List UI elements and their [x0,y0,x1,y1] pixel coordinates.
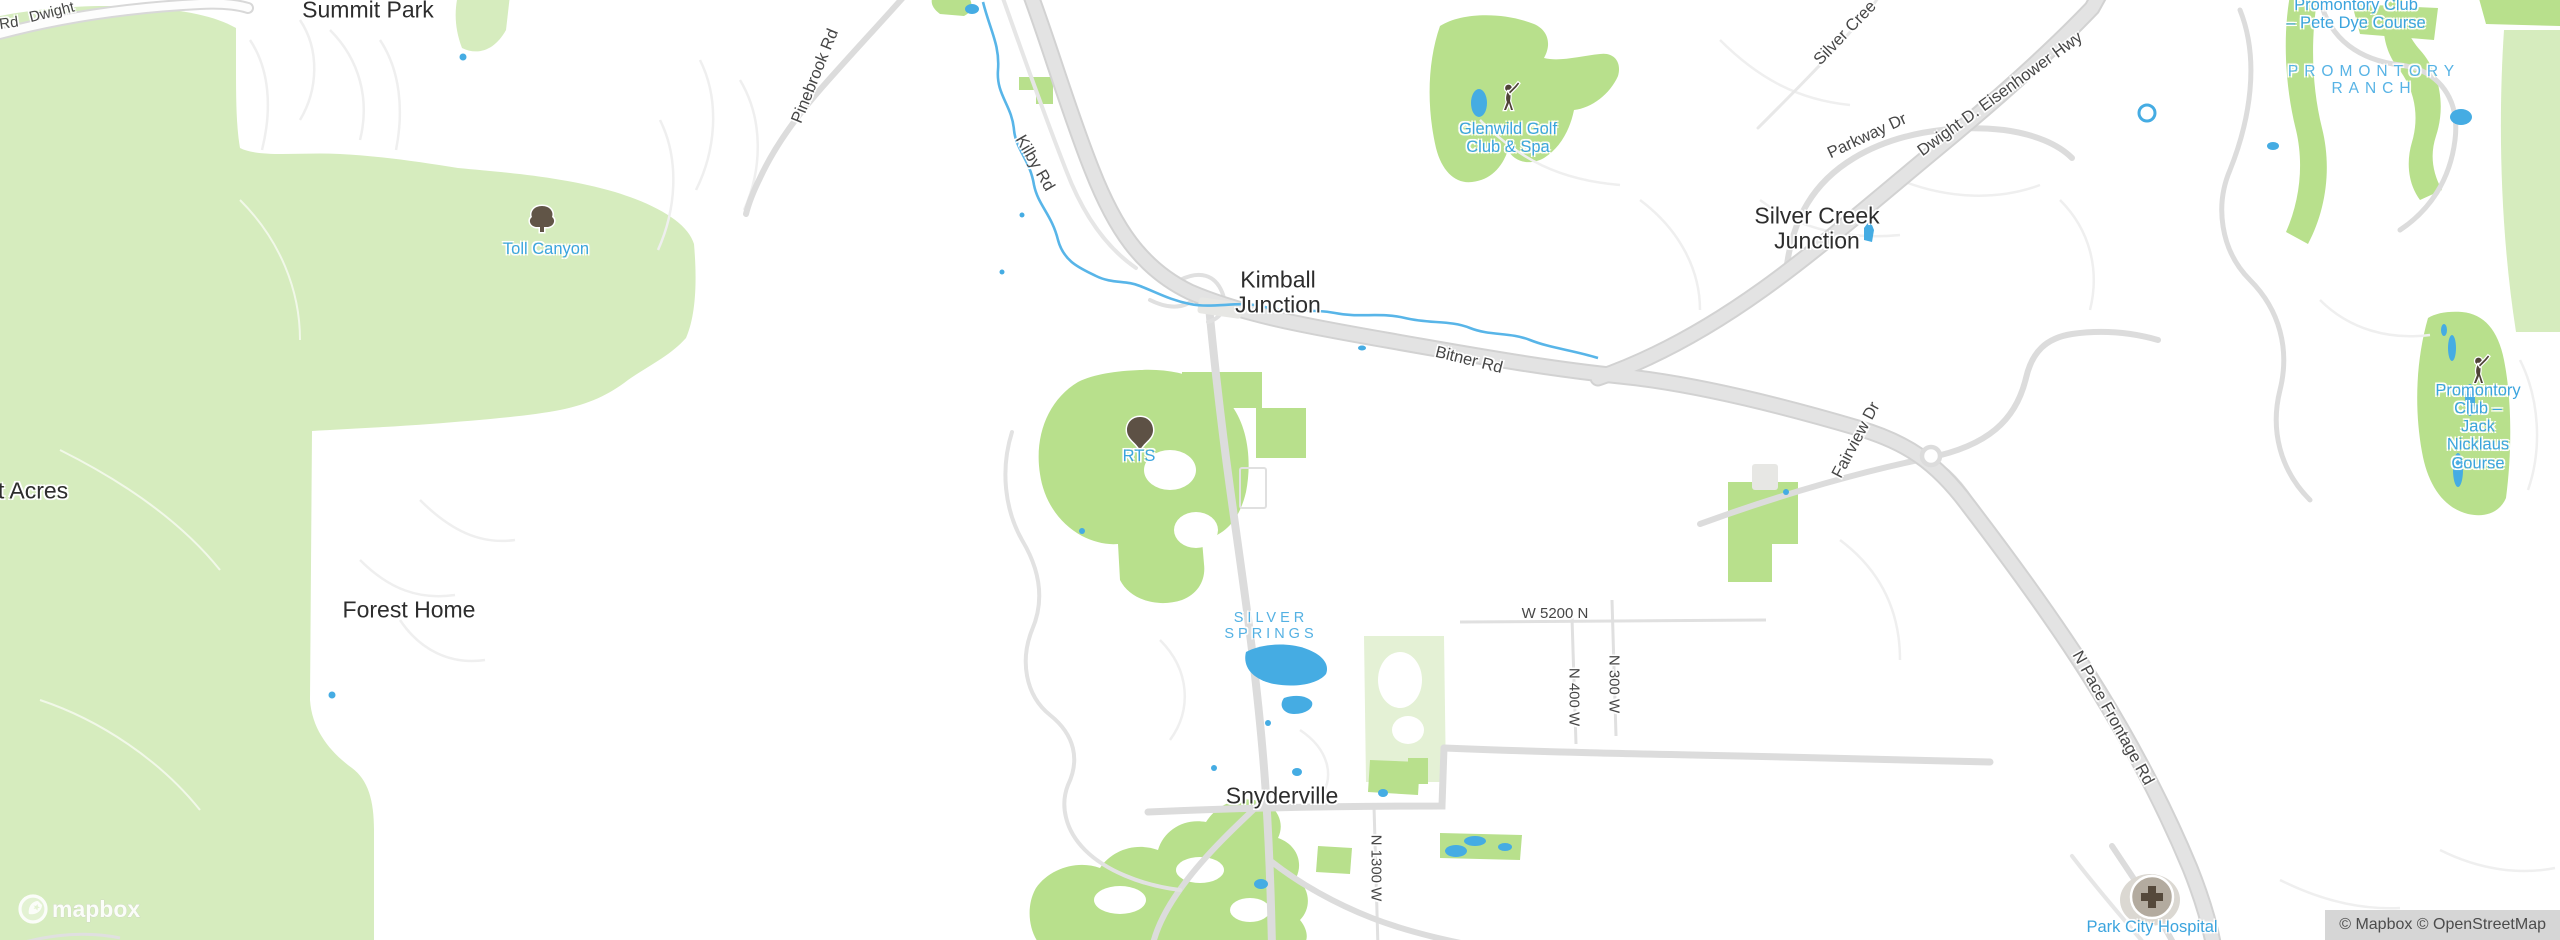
attribution[interactable]: © Mapbox © OpenStreetMap [2325,910,2560,940]
mapbox-wordmark: mapbox [52,896,140,922]
mapbox-logo[interactable]: mapbox [16,891,186,932]
map-geometry [0,0,2560,940]
hospital-icon [2131,876,2173,918]
medium-roads [746,0,2456,940]
mapbox-pin-icon [20,896,46,922]
map-canvas[interactable]: Rd Dwight Summit Park Pinebrook Rd Kilby… [0,0,2560,940]
forest-areas [0,0,2560,940]
